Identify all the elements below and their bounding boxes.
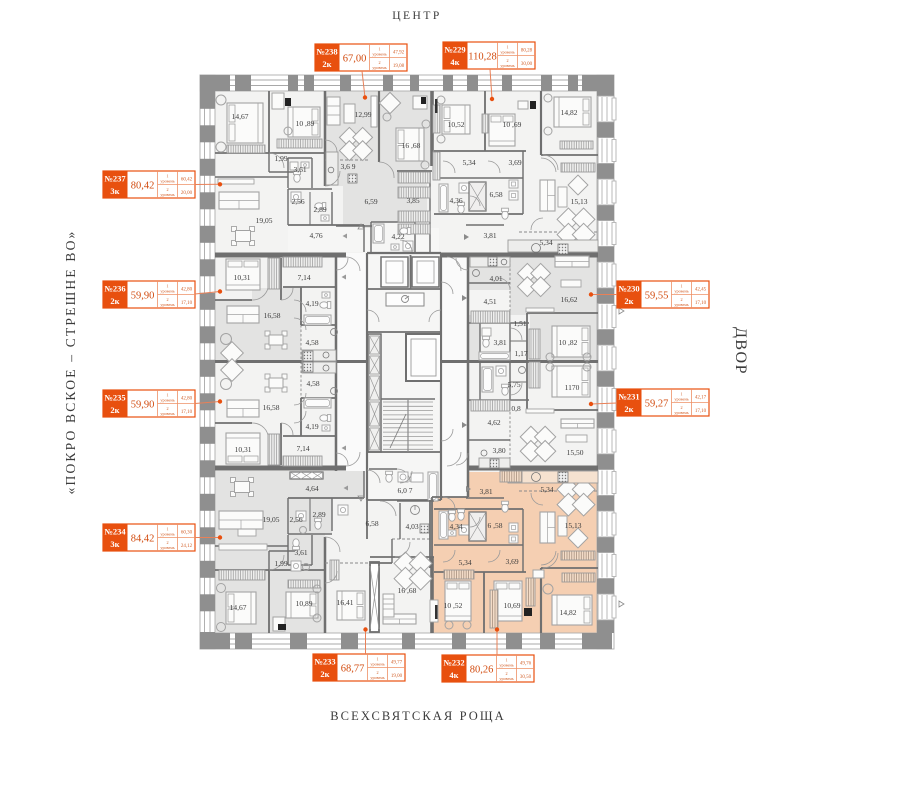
- svg-text:3,69: 3,69: [505, 557, 518, 566]
- svg-text:19,05: 19,05: [256, 216, 273, 225]
- svg-text:4,76: 4,76: [309, 231, 322, 240]
- svg-text:49,76: 49,76: [520, 662, 532, 667]
- svg-text:10,31: 10,31: [235, 445, 252, 454]
- svg-text:4,62: 4,62: [487, 418, 500, 427]
- svg-text:уровень: уровень: [160, 192, 174, 197]
- svg-text:4к: 4к: [450, 57, 459, 67]
- svg-text:3к: 3к: [110, 186, 119, 196]
- svg-text:17,10: 17,10: [181, 410, 193, 415]
- svg-text:6,58: 6,58: [489, 190, 502, 199]
- svg-text:14,82: 14,82: [561, 108, 578, 117]
- svg-text:2к: 2к: [322, 59, 331, 69]
- svg-text:6 ,58: 6 ,58: [488, 521, 503, 530]
- svg-text:уровень: уровень: [674, 410, 688, 415]
- svg-text:30,00: 30,00: [521, 62, 533, 67]
- svg-text:2к: 2к: [624, 404, 633, 414]
- svg-text:10,31: 10,31: [234, 273, 251, 282]
- svg-text:1,51: 1,51: [513, 319, 526, 328]
- svg-text:16,58: 16,58: [264, 311, 281, 320]
- svg-text:2,89: 2,89: [313, 205, 326, 214]
- svg-text:№229: №229: [444, 45, 465, 55]
- svg-text:уровень: уровень: [160, 302, 174, 307]
- svg-text:60,30: 60,30: [181, 531, 193, 536]
- svg-text:уровень: уровень: [500, 63, 514, 68]
- svg-text:68,77: 68,77: [341, 664, 365, 675]
- svg-text:4,03: 4,03: [405, 522, 418, 531]
- svg-text:4,51: 4,51: [483, 297, 496, 306]
- svg-text:0,8: 0,8: [511, 404, 521, 413]
- svg-text:№236: №236: [104, 284, 125, 294]
- svg-text:4,36: 4,36: [449, 196, 462, 205]
- svg-text:уровень: уровень: [500, 50, 514, 55]
- svg-text:67,00: 67,00: [343, 54, 367, 65]
- svg-text:4,64: 4,64: [305, 484, 318, 493]
- svg-text:15,13: 15,13: [571, 197, 588, 206]
- svg-text:110,28: 110,28: [468, 52, 497, 63]
- svg-text:ЦЕНТР: ЦЕНТР: [392, 10, 442, 22]
- svg-text:уровень: уровень: [499, 663, 513, 668]
- svg-text:59,27: 59,27: [645, 399, 669, 410]
- svg-text:1170: 1170: [565, 383, 580, 392]
- svg-text:84,42: 84,42: [131, 534, 155, 545]
- svg-text:5,34: 5,34: [540, 485, 553, 494]
- svg-text:уровень: уровень: [372, 65, 386, 70]
- svg-text:19,00: 19,00: [391, 674, 403, 679]
- svg-text:№234: №234: [104, 527, 126, 537]
- svg-text:80,26: 80,26: [470, 665, 494, 676]
- svg-text:16,62: 16,62: [561, 295, 578, 304]
- svg-text:49,77: 49,77: [391, 661, 403, 666]
- svg-text:59,90: 59,90: [131, 400, 155, 411]
- svg-text:4,19: 4,19: [305, 422, 318, 431]
- svg-text:уровень: уровень: [674, 397, 688, 402]
- svg-text:№238: №238: [316, 47, 337, 57]
- svg-text:2к: 2к: [320, 669, 329, 679]
- svg-text:20,00: 20,00: [181, 191, 193, 196]
- svg-text:7,14: 7,14: [296, 444, 309, 453]
- svg-text:15,50: 15,50: [567, 448, 584, 457]
- svg-text:16,41: 16,41: [337, 598, 354, 607]
- svg-text:12,99: 12,99: [355, 110, 372, 119]
- svg-text:42,80: 42,80: [181, 288, 193, 293]
- svg-text:4,01: 4,01: [489, 274, 502, 283]
- svg-text:10 ,82: 10 ,82: [559, 338, 578, 347]
- svg-text:уровень: уровень: [160, 545, 174, 550]
- svg-text:42,80: 42,80: [181, 397, 193, 402]
- svg-text:10 ,52: 10 ,52: [444, 601, 463, 610]
- svg-text:4,19: 4,19: [305, 299, 318, 308]
- svg-text:3,69: 3,69: [508, 158, 521, 167]
- svg-text:1,99: 1,99: [274, 154, 287, 163]
- svg-text:№231: №231: [618, 392, 639, 402]
- svg-text:19,08: 19,08: [393, 64, 405, 69]
- svg-text:уровень: уровень: [160, 411, 174, 416]
- svg-text:16 ,68: 16 ,68: [402, 141, 421, 150]
- svg-text:ВСЕХСВЯТСКАЯ РОЩА: ВСЕХСВЯТСКАЯ РОЩА: [330, 709, 506, 723]
- svg-text:80,28: 80,28: [521, 49, 533, 54]
- svg-text:№232: №232: [443, 658, 464, 668]
- svg-text:2к: 2к: [110, 296, 119, 306]
- svg-text:47,92: 47,92: [393, 51, 405, 56]
- svg-text:2,56: 2,56: [289, 515, 302, 524]
- svg-text:2к: 2к: [110, 405, 119, 415]
- svg-text:уровень: уровень: [370, 662, 384, 667]
- svg-text:2к: 2к: [624, 296, 633, 306]
- svg-text:№237: №237: [104, 174, 126, 184]
- svg-text:3,81: 3,81: [493, 338, 506, 347]
- svg-text:42,45: 42,45: [695, 288, 707, 293]
- svg-text:уровень: уровень: [499, 676, 513, 681]
- svg-text:24,12: 24,12: [181, 544, 193, 549]
- svg-text:17,10: 17,10: [695, 409, 707, 414]
- svg-text:2,89: 2,89: [312, 510, 325, 519]
- svg-text:6,59: 6,59: [364, 197, 377, 206]
- svg-text:4,58: 4,58: [306, 379, 319, 388]
- svg-text:4к: 4к: [449, 670, 458, 680]
- svg-text:уровень: уровень: [160, 179, 174, 184]
- svg-text:уровень: уровень: [160, 289, 174, 294]
- svg-text:30,50: 30,50: [520, 675, 532, 680]
- svg-text:4,34: 4,34: [449, 522, 462, 531]
- svg-text:17,10: 17,10: [695, 301, 707, 306]
- svg-text:10 ,89: 10 ,89: [296, 119, 315, 128]
- svg-text:16 ,68: 16 ,68: [398, 586, 417, 595]
- svg-text:3,6 9: 3,6 9: [341, 162, 356, 171]
- svg-text:уровень: уровень: [160, 398, 174, 403]
- svg-text:№233: №233: [314, 657, 335, 667]
- svg-text:3,80: 3,80: [492, 446, 505, 455]
- svg-text:10,89: 10,89: [296, 599, 313, 608]
- svg-text:59,90: 59,90: [131, 291, 155, 302]
- svg-text:5,34: 5,34: [462, 158, 475, 167]
- svg-text:1,99: 1,99: [274, 559, 287, 568]
- svg-text:14,67: 14,67: [232, 112, 249, 121]
- svg-text:42,17: 42,17: [695, 396, 707, 401]
- svg-text:3,61: 3,61: [293, 165, 306, 174]
- svg-text:3,81: 3,81: [479, 487, 492, 496]
- svg-text:№235: №235: [104, 393, 125, 403]
- svg-text:7,14: 7,14: [297, 273, 310, 282]
- svg-text:уровень: уровень: [160, 532, 174, 537]
- svg-text:«ПОКРО ВСКОЕ – СТРЕШНЕ ВО»: «ПОКРО ВСКОЕ – СТРЕШНЕ ВО»: [63, 230, 78, 495]
- svg-text:60,42: 60,42: [181, 178, 193, 183]
- svg-text:10,52: 10,52: [448, 120, 465, 129]
- svg-text:4,58: 4,58: [305, 338, 318, 347]
- svg-text:3к: 3к: [110, 539, 119, 549]
- svg-text:10,69: 10,69: [504, 601, 521, 610]
- svg-text:10 ,69: 10 ,69: [503, 120, 522, 129]
- svg-text:1,17: 1,17: [514, 349, 527, 358]
- svg-text:уровень: уровень: [372, 52, 386, 57]
- svg-text:15,13: 15,13: [565, 521, 582, 530]
- svg-text:уровень: уровень: [674, 289, 688, 294]
- svg-text:19,05: 19,05: [263, 515, 280, 524]
- svg-text:6,58: 6,58: [365, 519, 378, 528]
- svg-text:59,55: 59,55: [645, 291, 669, 302]
- svg-text:3,61: 3,61: [294, 548, 307, 557]
- svg-text:16,58: 16,58: [263, 403, 280, 412]
- svg-text:№230: №230: [618, 284, 639, 294]
- svg-text:17,10: 17,10: [181, 301, 193, 306]
- svg-text:5,34: 5,34: [458, 558, 471, 567]
- svg-text:6,0 7: 6,0 7: [398, 486, 413, 495]
- svg-text:14,82: 14,82: [560, 608, 577, 617]
- svg-text:ДВОР: ДВОР: [732, 327, 749, 375]
- svg-text:80,42: 80,42: [131, 181, 155, 192]
- svg-text:14,67: 14,67: [230, 603, 247, 612]
- svg-text:5,34: 5,34: [539, 238, 552, 247]
- svg-text:2,56: 2,56: [291, 197, 304, 206]
- svg-text:3,81: 3,81: [483, 231, 496, 240]
- svg-text:5,75: 5,75: [507, 380, 520, 389]
- svg-text:3,85: 3,85: [406, 196, 419, 205]
- svg-text:уровень: уровень: [674, 302, 688, 307]
- svg-text:уровень: уровень: [370, 675, 384, 680]
- svg-text:4,22: 4,22: [391, 232, 404, 241]
